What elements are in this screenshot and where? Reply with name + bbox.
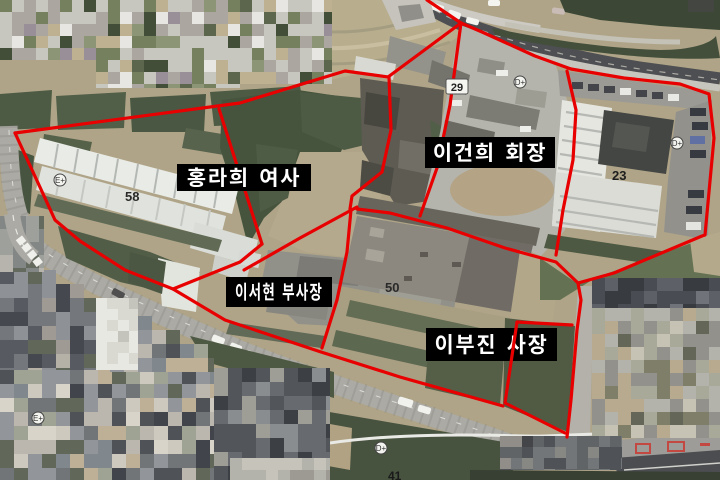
svg-text:58: 58 [125,189,139,204]
svg-text:D+: D+ [515,78,526,87]
svg-text:23: 23 [612,168,626,183]
svg-text:D+: D+ [672,139,683,148]
svg-text:41: 41 [388,469,402,480]
svg-text:E+: E+ [55,176,65,185]
svg-text:D+: D+ [376,444,387,453]
svg-text:E+: E+ [33,414,43,423]
svg-text:50: 50 [385,280,399,295]
svg-text:29: 29 [451,82,463,94]
